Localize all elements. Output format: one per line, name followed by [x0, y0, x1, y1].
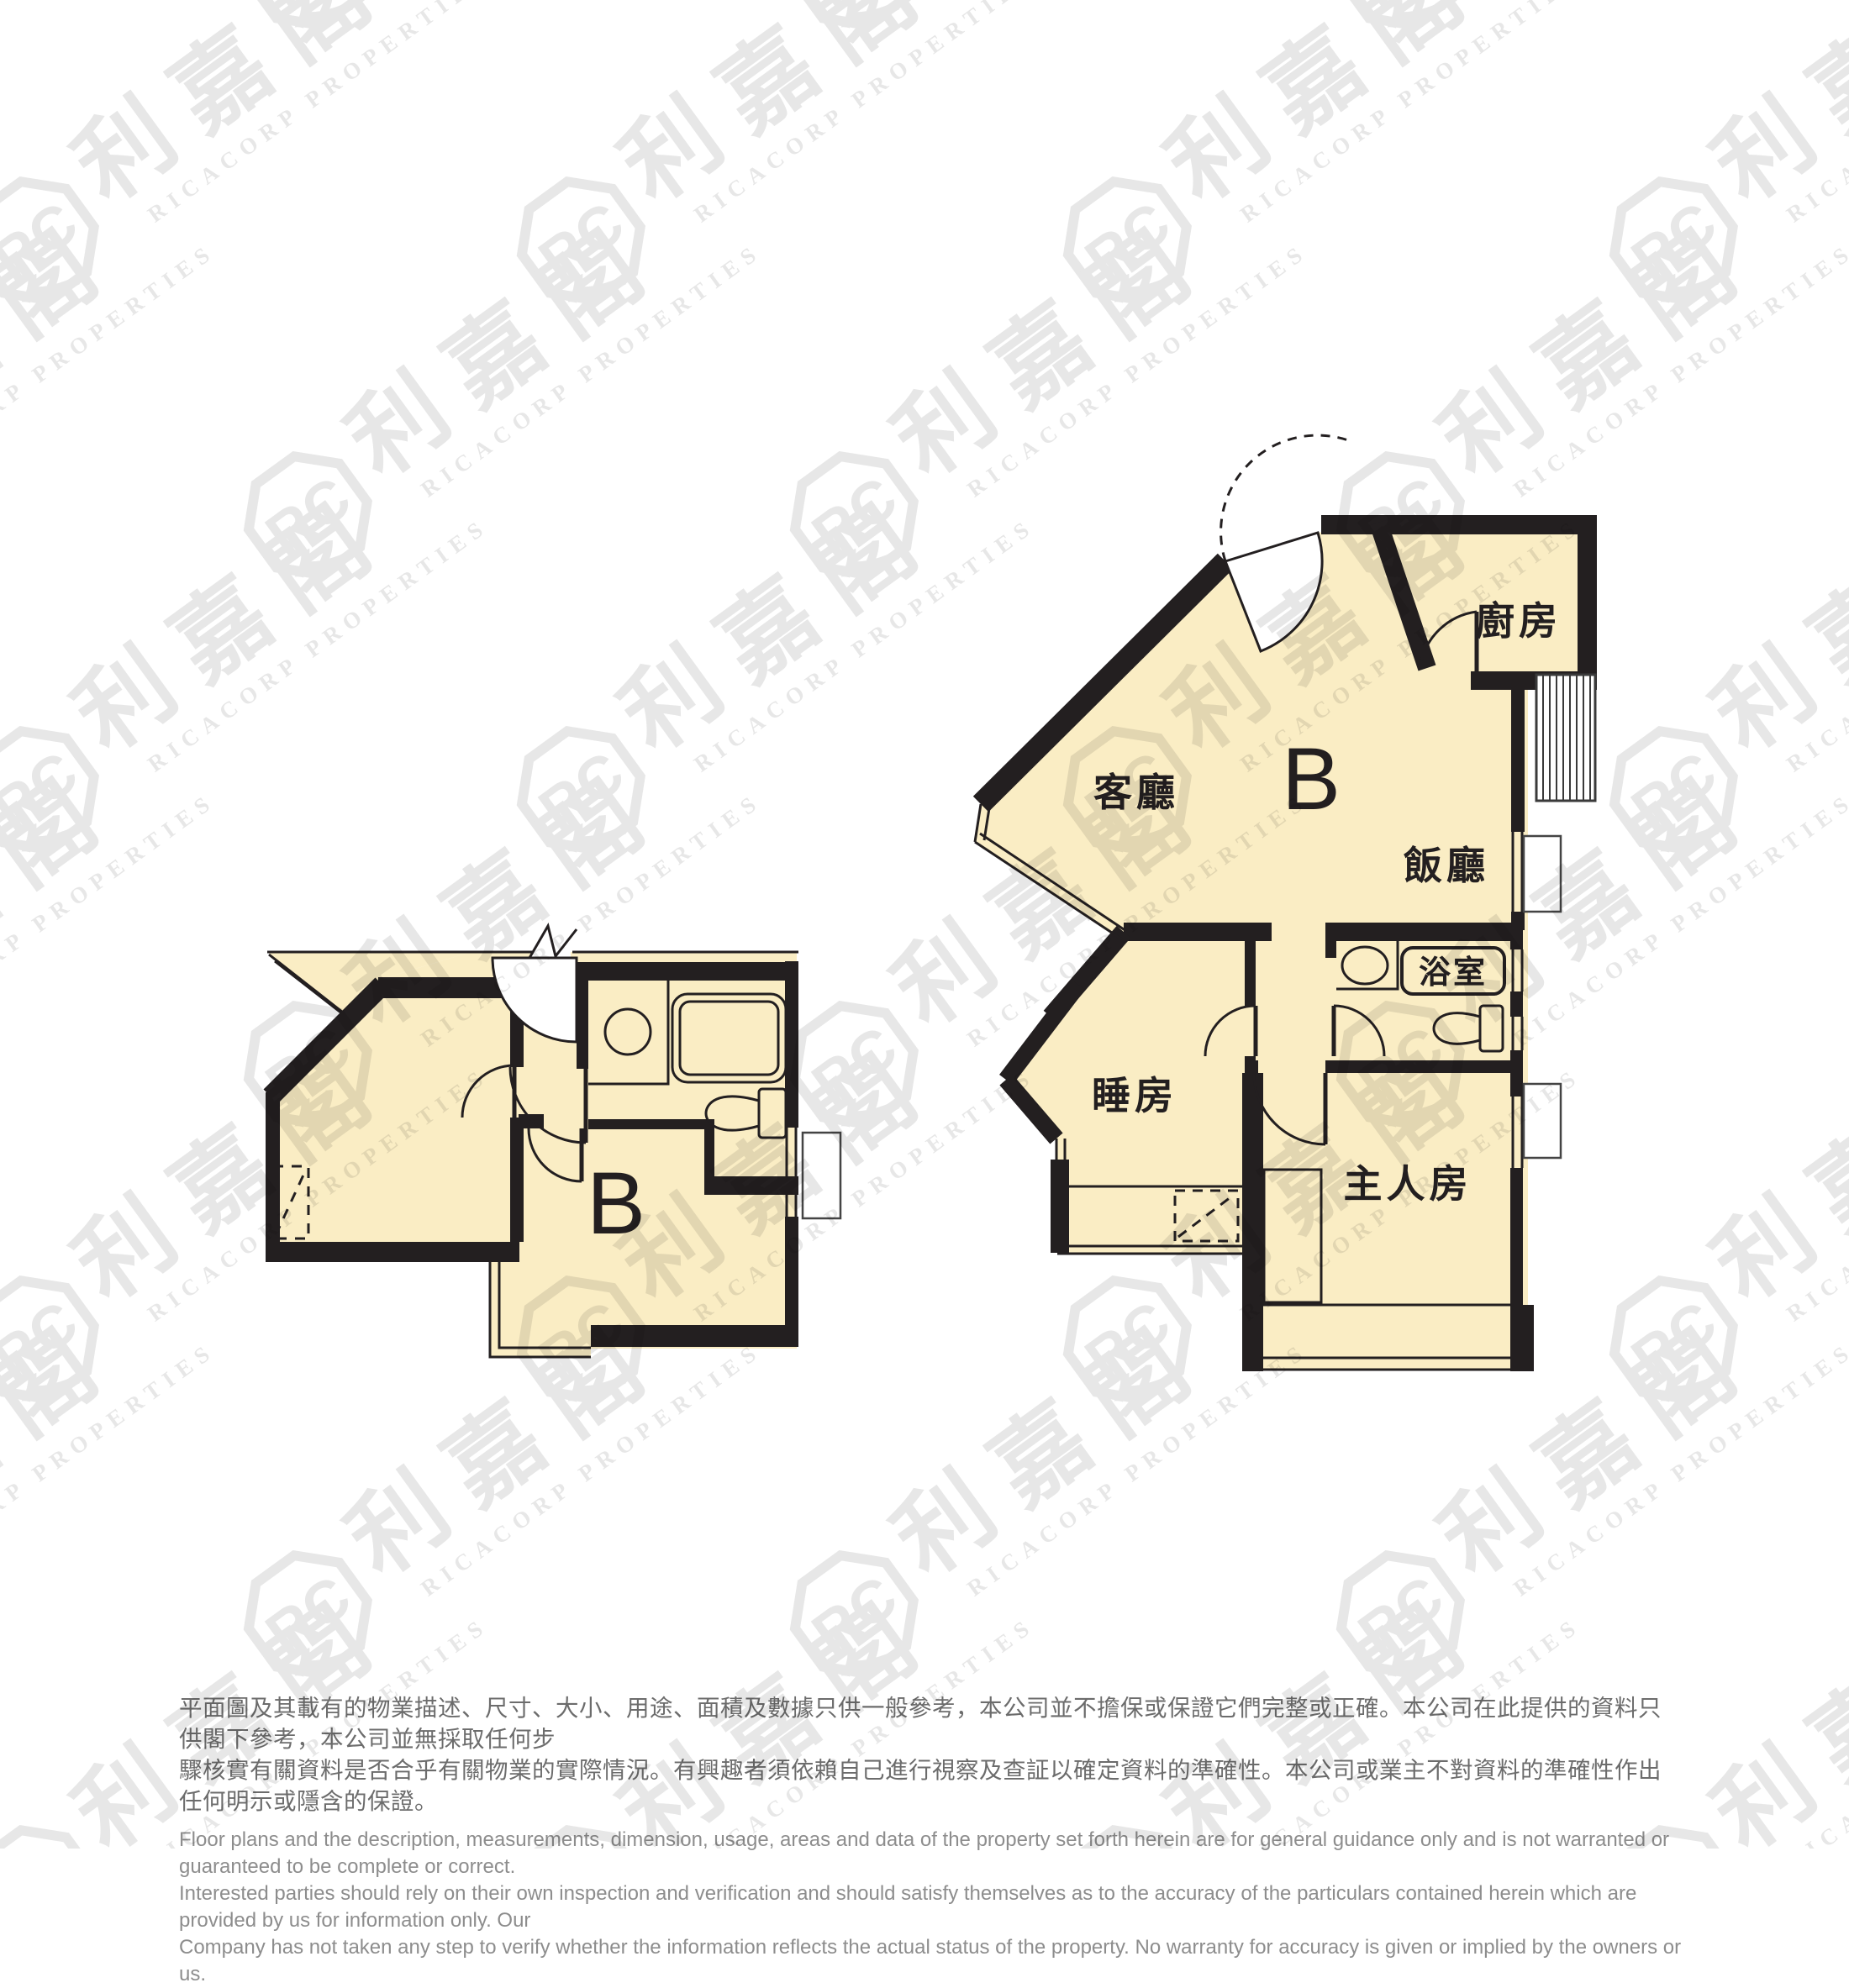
entrance-break-symbol: [529, 926, 577, 958]
ac-platform: [1524, 1084, 1561, 1158]
ac-platform: [803, 1133, 840, 1218]
room-label-master: 主人房: [1344, 1162, 1472, 1206]
louver-hatch: [1536, 675, 1595, 801]
ac-platform: [1524, 836, 1561, 912]
floorplans-canvas: 廚房 客廳 飯廳 B 浴室 睡房 主人房: [0, 0, 1849, 1849]
disclaimer-english: Floor plans and the description, measure…: [179, 1827, 1683, 1988]
unit-label-left: B: [587, 1154, 645, 1253]
left-floorplan: B: [266, 926, 840, 1357]
room-label-dining: 飯廳: [1404, 844, 1489, 887]
right-floorplan: 廚房 客廳 飯廳 B 浴室 睡房 主人房: [975, 435, 1597, 1371]
disclaimer-en-line: Interested parties should rely on their …: [179, 1880, 1683, 1934]
disclaimer-en-line: Company has not taken any step to verify…: [179, 1934, 1683, 1988]
disclaimer-zh-line: 平面圖及其載有的物業描述、尺寸、大小、用途、面積及數據只供一般參考，本公司並不擔…: [179, 1692, 1683, 1754]
room-label-bedroom: 睡房: [1092, 1074, 1177, 1118]
room-label-bathroom: 浴室: [1419, 955, 1488, 991]
disclaimer-zh-line: 驟核實有關資料是否合乎有關物業的實際情況。有興趣者須依賴自己進行視察及查証以確定…: [179, 1754, 1683, 1817]
disclaimer-chinese: 平面圖及其載有的物業描述、尺寸、大小、用途、面積及數據只供一般參考，本公司並不擔…: [179, 1692, 1683, 1817]
floorplan-page: 廚房 客廳 飯廳 B 浴室 睡房 主人房: [0, 0, 1849, 1849]
room-label-living: 客廳: [1093, 770, 1179, 814]
disclaimer: 平面圖及其載有的物業描述、尺寸、大小、用途、面積及數據只供一般參考，本公司並不擔…: [179, 1692, 1683, 1988]
room-label-kitchen: 廚房: [1476, 599, 1562, 643]
unit-label-right: B: [1282, 730, 1341, 828]
disclaimer-en-line: Floor plans and the description, measure…: [179, 1827, 1683, 1880]
